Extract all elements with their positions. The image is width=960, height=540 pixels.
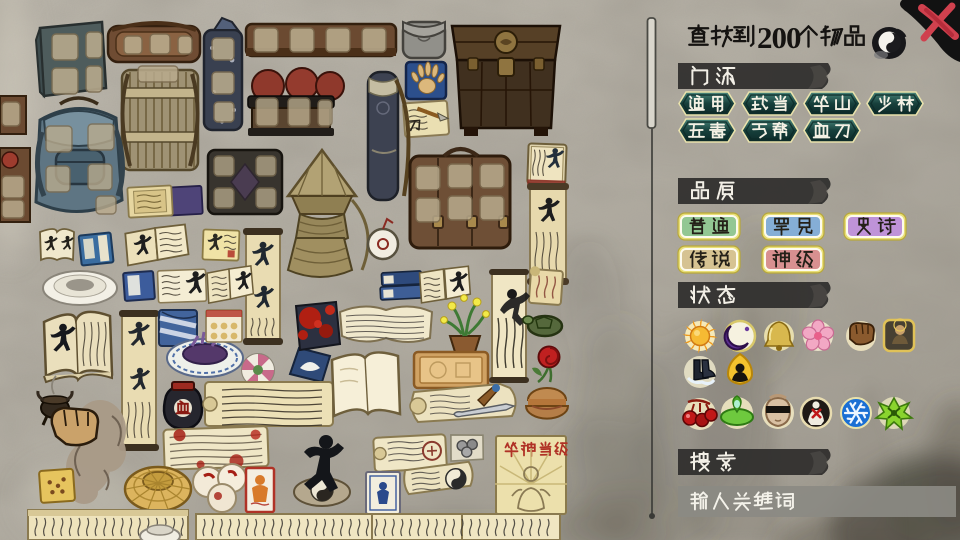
- svg-text:200: 200: [757, 20, 801, 55]
